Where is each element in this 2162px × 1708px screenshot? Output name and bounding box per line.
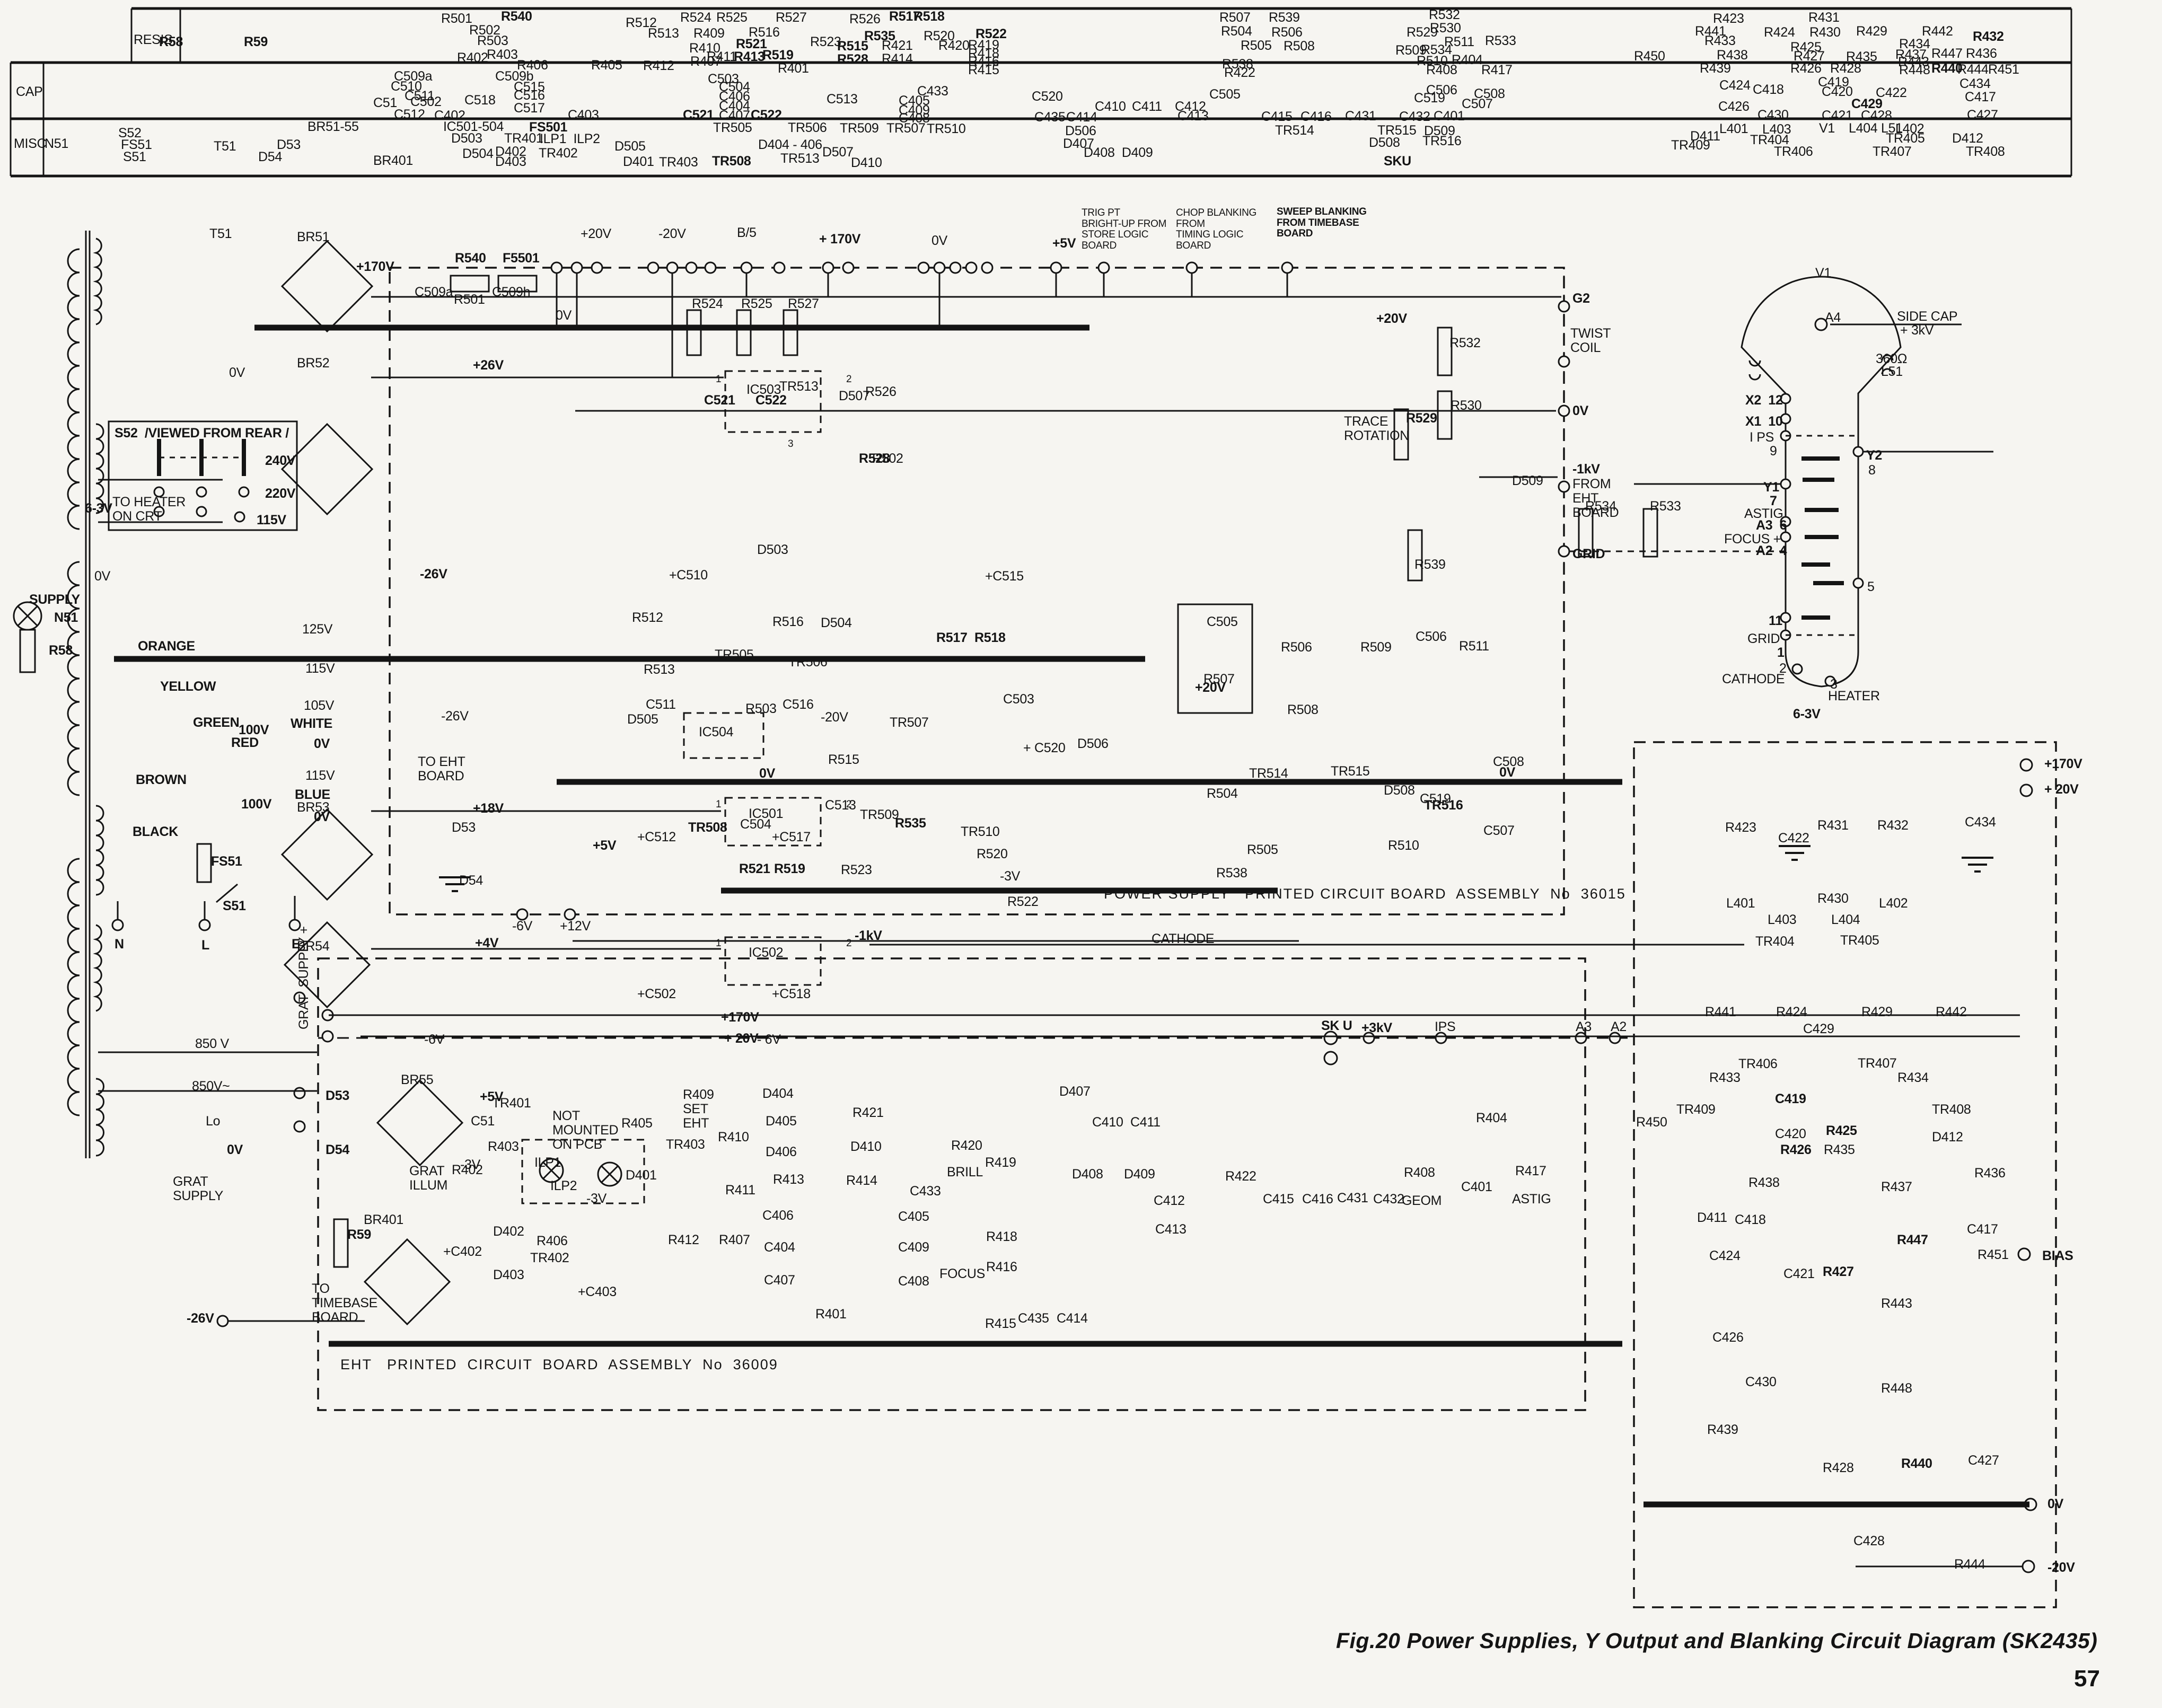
- schematic-label: -20V: [2047, 1561, 2075, 1575]
- schematic-label: R421: [882, 39, 913, 53]
- schematic-label: R58: [159, 35, 183, 49]
- schematic-label: R432: [1877, 818, 1909, 833]
- schematic-label: C429: [1803, 1022, 1834, 1036]
- schematic-label: BR51: [297, 230, 329, 244]
- schematic-label: R522: [1007, 895, 1039, 909]
- schematic-label: R525: [741, 297, 772, 311]
- schematic-label: C521: [704, 393, 735, 408]
- schematic-label: TO HEATER ON CRT: [112, 495, 186, 524]
- schematic-label: ILP1: [534, 1156, 561, 1170]
- schematic-label: FS51: [211, 855, 242, 869]
- schematic-label: -1kV: [1572, 462, 1600, 477]
- schematic-label: Lo: [206, 1114, 220, 1129]
- schematic-label: C427: [1968, 1454, 1999, 1468]
- schematic-label: G2: [1572, 292, 1590, 306]
- schematic-label: D505: [614, 139, 646, 154]
- schematic-label: R513: [644, 663, 675, 677]
- schematic-label: D509: [1512, 474, 1543, 488]
- schematic-label: D503: [757, 543, 788, 557]
- schematic-label: R403: [488, 1140, 519, 1154]
- schematic-label: R424: [1764, 25, 1795, 40]
- schematic-label: CATHODE: [1152, 932, 1214, 946]
- schematic-label: R512: [632, 611, 663, 625]
- schematic-label: V1: [1819, 121, 1835, 136]
- schematic-label: R433: [1709, 1071, 1741, 1085]
- schematic-label: TR509: [840, 121, 879, 136]
- schematic-label: 0V: [227, 1143, 243, 1157]
- schematic-label: C431: [1337, 1191, 1368, 1205]
- schematic-label: +170V: [2044, 757, 2082, 771]
- schematic-label: R434: [1897, 1071, 1929, 1085]
- schematic-label: TR514: [1275, 124, 1314, 138]
- schematic-label: TR408: [1966, 145, 2005, 159]
- schematic-label: D54: [258, 150, 282, 164]
- schematic-label: C432: [1399, 110, 1430, 124]
- schematic-label: R524: [680, 11, 711, 25]
- schematic-label: C406: [762, 1209, 794, 1223]
- schematic-label: R509: [1360, 640, 1392, 655]
- schematic-label: BLACK: [133, 825, 178, 839]
- schematic-label: 850 V: [195, 1037, 229, 1051]
- schematic-label: A4: [1825, 311, 1841, 325]
- schematic-label: R431: [1808, 11, 1840, 25]
- schematic-label: TR513: [779, 380, 819, 394]
- schematic-label: R510: [1388, 839, 1419, 853]
- schematic-label: C417: [1965, 90, 1996, 104]
- schematic-label: R438: [1717, 48, 1748, 63]
- schematic-label: T51: [214, 139, 236, 154]
- schematic-label: R430: [1809, 25, 1841, 40]
- schematic-label: R412: [668, 1233, 699, 1247]
- schematic-label: 0V: [94, 569, 110, 584]
- schematic-label: A3: [1576, 1020, 1592, 1034]
- schematic-label: N51: [54, 611, 78, 625]
- schematic-label: TRIG PT BRIGHT-UP FROM STORE LOGIC BOARD: [1082, 208, 1166, 251]
- schematic-label: C520: [1032, 90, 1063, 104]
- schematic-label: C415: [1263, 1192, 1294, 1207]
- schematic-label: A2 4: [1756, 544, 1787, 558]
- schematic-label: R415: [968, 63, 999, 77]
- schematic-label: C411: [1130, 1115, 1161, 1130]
- schematic-label: POWER SUPPLY PRINTED CIRCUIT BOARD ASSEM…: [1104, 886, 1626, 902]
- schematic-label: R405: [591, 58, 622, 73]
- schematic-label: R412: [643, 59, 674, 73]
- schematic-label: R431: [1817, 818, 1849, 833]
- schematic-label: R539: [1269, 11, 1300, 25]
- schematic-label: 240V: [265, 454, 295, 468]
- schematic-label: TWIST COIL: [1570, 327, 1611, 355]
- schematic-label: FS501: [529, 120, 567, 135]
- schematic-label: D508: [1369, 136, 1400, 150]
- schematic-label: GRAT ILLUM: [409, 1164, 447, 1193]
- schematic-label: TR507: [886, 121, 926, 136]
- schematic-label: D401: [626, 1168, 657, 1183]
- schematic-label: 0V: [1572, 404, 1588, 418]
- schematic-label: HEATER: [1828, 689, 1880, 703]
- schematic-label: EHT PRINTED CIRCUIT BOARD ASSEMBLY No 36…: [340, 1357, 778, 1372]
- schematic-label: +C515: [985, 569, 1024, 584]
- schematic-label: 115V: [257, 513, 286, 527]
- schematic-label: R420: [938, 39, 970, 53]
- schematic-label: D412: [1932, 1130, 1963, 1144]
- schematic-label: R442: [1936, 1005, 1967, 1019]
- schematic-label: -3V: [1000, 869, 1020, 884]
- schematic-label: S51: [223, 899, 246, 913]
- schematic-label: +12V: [560, 919, 591, 934]
- schematic-label: R533: [1485, 34, 1516, 48]
- schematic-label: GRID: [1572, 547, 1605, 561]
- schematic-label: R59: [347, 1228, 371, 1242]
- schematic-label: R401: [778, 61, 809, 76]
- schematic-label: L403: [1768, 913, 1796, 927]
- schematic-label: S51: [123, 150, 146, 164]
- schematic-label: R450: [1636, 1115, 1667, 1130]
- schematic-label: D507: [839, 389, 870, 403]
- schematic-label: R403: [487, 48, 518, 62]
- schematic-label: D404 - 406: [758, 138, 822, 152]
- schematic-label: R413: [773, 1173, 804, 1187]
- schematic-label: R439: [1707, 1423, 1738, 1437]
- schematic-label: L404: [1831, 913, 1860, 927]
- schematic-label: 1: [1777, 646, 1785, 660]
- schematic-label: R501: [441, 12, 472, 26]
- schematic-label: R404: [1452, 53, 1483, 67]
- schematic-label: C435: [1034, 110, 1066, 125]
- schematic-label: R411: [707, 50, 737, 64]
- schematic-label: R409: [693, 27, 725, 41]
- schematic-label: ORANGE: [138, 639, 195, 654]
- schematic-label: R443: [1881, 1297, 1912, 1311]
- schematic-label: C430: [1757, 108, 1789, 122]
- schematic-label: +C510: [669, 568, 708, 583]
- schematic-label: +20V: [1195, 681, 1226, 695]
- transformer-t51: [68, 231, 104, 1158]
- schematic-label: -26V: [441, 709, 469, 724]
- schematic-label: C519: [1414, 91, 1445, 105]
- schematic-label: +3kV: [1361, 1021, 1392, 1035]
- schematic-label: SK U: [1321, 1019, 1352, 1033]
- schematic-label: D406: [766, 1145, 797, 1159]
- schematic-label: R435: [1824, 1143, 1855, 1157]
- schematic-label: R540: [455, 251, 486, 266]
- schematic-label: TR404: [1755, 935, 1795, 949]
- schematic-label: TR405: [1886, 131, 1925, 146]
- schematic-label: R426: [1780, 1143, 1812, 1157]
- schematic-label: R526: [849, 12, 881, 27]
- schematic-label: 1: [716, 799, 721, 811]
- schematic-label: D54: [326, 1143, 349, 1157]
- schematic-label: C426: [1718, 100, 1750, 114]
- schematic-label: B/5: [737, 226, 757, 240]
- schematic-label: R507: [1219, 11, 1251, 25]
- schematic-label: 0V: [314, 737, 330, 751]
- schematic-label: R424: [1776, 1005, 1807, 1019]
- schematic-label: R532: [1449, 336, 1481, 350]
- schematic-label: MISC: [14, 137, 46, 151]
- schematic-label: R534: [1585, 499, 1616, 514]
- schematic-label: TR403: [666, 1138, 705, 1152]
- schematic-label: R410: [718, 1130, 749, 1144]
- schematic-label: R433: [1704, 34, 1736, 48]
- schematic-label: TR407: [1858, 1057, 1897, 1071]
- schematic-label: TR402: [530, 1251, 569, 1265]
- schematic-label: N51: [45, 137, 68, 151]
- schematic-label: C422: [1876, 86, 1907, 100]
- schematic-label: R523: [841, 863, 872, 877]
- schematic-label: +26V: [473, 358, 504, 373]
- schematic-label: R416: [986, 1260, 1017, 1274]
- schematic-label: R422: [1225, 1169, 1256, 1184]
- schematic-label: SKU: [1384, 154, 1411, 169]
- schematic-label: C432: [1373, 1192, 1404, 1207]
- schematic-label: -1kV: [855, 929, 882, 943]
- schematic-label: -20V: [658, 227, 686, 241]
- schematic-label: C505: [1207, 615, 1238, 629]
- schematic-label: BRILL: [947, 1165, 983, 1179]
- schematic-label: R533: [1650, 499, 1681, 514]
- schematic-label: BR51-55: [307, 120, 359, 134]
- schematic-label: GRAT SUPPLY +: [297, 926, 311, 1029]
- schematic-label: ASTIG: [1512, 1192, 1551, 1207]
- schematic-label: 11: [1769, 614, 1782, 628]
- schematic-label: R508: [1287, 703, 1319, 717]
- schematic-label: C420: [1822, 85, 1853, 99]
- schematic-label: CAP: [16, 85, 43, 99]
- schematic-label: D401: [623, 155, 654, 169]
- schematic-label: TR403: [659, 155, 698, 170]
- schematic-label: C403: [568, 108, 599, 122]
- schematic-label: R504: [1207, 787, 1238, 801]
- schematic-label: C511: [646, 698, 676, 712]
- schematic-label: C415: [1261, 110, 1293, 124]
- schematic-label: +C502: [637, 987, 676, 1001]
- schematic-label: R523: [810, 35, 841, 49]
- schematic-label: C418: [1735, 1213, 1766, 1227]
- schematic-label: C420: [1775, 1127, 1806, 1141]
- schematic-label: R518: [913, 10, 945, 24]
- schematic-label: R438: [1748, 1176, 1780, 1190]
- schematic-label: SWEEP BLANKING FROM TIMEBASE BOARD: [1277, 207, 1367, 240]
- schematic-label: TR514: [1249, 767, 1288, 781]
- schematic-label: R503: [745, 702, 777, 716]
- schematic-label: R450: [1634, 49, 1665, 64]
- schematic-label: C422: [1778, 831, 1809, 846]
- schematic-label: 0V: [759, 767, 775, 781]
- schematic-label: D504: [821, 616, 852, 630]
- schematic-label: C512: [394, 108, 425, 122]
- schematic-label: Y1: [1763, 480, 1779, 495]
- schematic-label: -6V: [424, 1033, 444, 1047]
- schematic-label: C410: [1095, 100, 1126, 114]
- schematic-label: R414: [882, 52, 913, 66]
- schematic-label: R423: [1725, 821, 1756, 835]
- schematic-label: +C512: [637, 830, 676, 844]
- schematic-label: 220V: [265, 487, 295, 501]
- schematic-label: R436: [1974, 1166, 2006, 1181]
- schematic-label: R451: [1978, 1248, 2009, 1262]
- schematic-label: A2: [1611, 1020, 1627, 1034]
- schematic-label: L: [201, 938, 209, 953]
- schematic-label: L402: [1879, 896, 1908, 911]
- schematic-label: TR506: [788, 121, 827, 135]
- schematic-label: 0V: [1499, 765, 1515, 780]
- schematic-label: CHOP BLANKING FROM TIMING LOGIC BOARD: [1176, 208, 1256, 251]
- schematic-label: D504: [462, 147, 494, 161]
- schematic-label: R506: [1281, 640, 1312, 655]
- component-boxes: [334, 276, 1657, 1267]
- schematic-label: TR516: [1424, 798, 1463, 813]
- schematic-label: BIAS: [2042, 1249, 2073, 1263]
- schematic-label: +C402: [443, 1245, 482, 1259]
- schematic-label: R505: [1247, 843, 1278, 857]
- schematic-label: A3 6: [1756, 518, 1787, 533]
- schematic-label: D403: [495, 155, 526, 169]
- schematic-label: R506: [1271, 25, 1303, 40]
- schematic-label: X1 10: [1745, 415, 1782, 429]
- schematic-label: R515: [828, 753, 859, 767]
- schematic-label: C405: [898, 1210, 929, 1224]
- schematic-label: TO TIMEBASE BOARD: [312, 1282, 377, 1325]
- schematic-label: + 3kV: [1900, 323, 1934, 338]
- schematic-label: TR405: [1840, 934, 1879, 948]
- schematic-label: L51: [1881, 365, 1903, 379]
- schematic-label: R422: [1224, 66, 1255, 80]
- schematic-label: C505: [1209, 87, 1241, 102]
- schematic-label: +20V: [581, 227, 611, 241]
- schematic-label: C433: [910, 1184, 941, 1199]
- schematic-label: R440: [1901, 1457, 1932, 1471]
- schematic-label: R447: [1897, 1233, 1928, 1247]
- schematic-label: R535: [895, 816, 926, 831]
- schematic-label: +18V: [473, 802, 504, 816]
- schematic-label: R418: [986, 1230, 1017, 1244]
- schematic-label: R408: [1404, 1166, 1435, 1180]
- page-number: 57: [2074, 1666, 2100, 1692]
- schematic-label: C424: [1709, 1249, 1741, 1263]
- schematic-label: + 20V: [2044, 782, 2079, 797]
- schematic-label: RED: [231, 736, 259, 750]
- schematic-label: 2: [846, 374, 851, 385]
- schematic-label: BR401: [364, 1213, 403, 1227]
- schematic-label: R448: [1881, 1381, 1912, 1396]
- schematic-label: IPS: [1435, 1020, 1455, 1034]
- schematic-label: D53: [452, 821, 476, 835]
- schematic-label: D404: [762, 1087, 794, 1101]
- schematic-label: TR407: [1873, 145, 1912, 159]
- schematic-label: - 6V: [757, 1033, 781, 1047]
- schematic-label: R521: [736, 37, 767, 51]
- schematic-label: R525: [716, 11, 748, 25]
- schematic-label: D410: [851, 156, 882, 170]
- schematic-label: S52 /VIEWED FROM REAR /: [115, 426, 289, 441]
- schematic-label: R538: [1216, 866, 1247, 881]
- schematic-label: R448: [1899, 63, 1930, 77]
- schematic-label: R451: [1988, 63, 2019, 77]
- schematic-label: R421: [853, 1106, 884, 1120]
- schematic-artwork: [0, 0, 2162, 1708]
- schematic-label: YELLOW: [160, 680, 216, 694]
- schematic-label: D408: [1072, 1167, 1103, 1182]
- schematic-label: C522: [755, 393, 787, 408]
- schematic-label: R402: [457, 51, 488, 65]
- schematic-label: C401: [1461, 1180, 1492, 1194]
- schematic-label: C426: [1712, 1331, 1744, 1345]
- zero-volt-buses: [114, 328, 2029, 1504]
- schematic-label: R524: [692, 297, 723, 311]
- schematic-label: R501: [454, 293, 485, 307]
- schematic-label: + C520: [1023, 741, 1066, 755]
- schematic-label: C408: [898, 1274, 929, 1289]
- schematic-label: D403: [493, 1268, 524, 1282]
- schematic-label: +170V: [721, 1010, 759, 1025]
- schematic-label: C518: [464, 93, 496, 108]
- schematic-label: C516: [783, 698, 814, 712]
- schematic-label: C407: [764, 1273, 795, 1288]
- schematic-label: R402: [452, 1163, 483, 1177]
- schematic-label: 2: [846, 938, 851, 949]
- schematic-label: C427: [1967, 108, 1998, 122]
- schematic-label: R511: [1459, 639, 1489, 654]
- schematic-label: R503: [477, 34, 508, 48]
- schematic-label: BR401: [373, 154, 413, 168]
- schematic-label: C521: [683, 108, 714, 122]
- schematic-label: R420: [951, 1139, 982, 1153]
- schematic-label: R417: [1515, 1164, 1546, 1178]
- schematic-label: C421: [1783, 1267, 1815, 1281]
- schematic-label: 105V: [304, 699, 334, 713]
- schematic-label: 9: [1770, 444, 1777, 459]
- schematic-label: R414: [846, 1174, 877, 1188]
- schematic-label: R508: [1284, 39, 1315, 54]
- schematic-label: -26V: [420, 567, 447, 582]
- schematic-label: C411: [1132, 100, 1162, 114]
- schematic-label: R432: [1973, 30, 2004, 44]
- schematic-label: R415: [985, 1317, 1016, 1331]
- schematic-label: R527: [788, 297, 819, 311]
- schematic-label: R411: [725, 1183, 755, 1198]
- schematic-label: TR406: [1738, 1057, 1778, 1071]
- schematic-label: D410: [850, 1140, 882, 1154]
- schematic-label: R437: [1881, 1180, 1912, 1194]
- schematic-label: 0V: [2047, 1497, 2063, 1511]
- schematic-label: BR52: [297, 356, 329, 371]
- schematic-label: X2 12: [1745, 393, 1782, 408]
- schematic-label: + 20V: [724, 1032, 759, 1046]
- schematic-label: C409: [898, 1240, 929, 1255]
- schematic-label: TR505: [715, 648, 754, 662]
- schematic-label: BROWN: [136, 773, 187, 787]
- schematic-label: BR55: [401, 1073, 433, 1087]
- schematic-label: R529: [1406, 411, 1437, 426]
- schematic-label: R515: [837, 39, 868, 54]
- schematic-label: 5: [1867, 580, 1875, 594]
- schematic-label: TR515: [1331, 764, 1370, 779]
- schematic-page: RESISR58R59R501R502R503R540R402R403R406R…: [0, 0, 2162, 1708]
- schematic-label: C522: [751, 108, 782, 122]
- schematic-label: R429: [1856, 24, 1887, 39]
- schematic-label: R428: [1823, 1461, 1854, 1475]
- schematic-label: R444: [1957, 63, 1989, 77]
- schematic-label: R530: [1430, 21, 1461, 36]
- schematic-label: C513: [827, 92, 858, 107]
- schematic-label: C414: [1066, 110, 1097, 125]
- schematic-label: D402: [493, 1225, 524, 1239]
- schematic-label: C509a: [415, 285, 453, 300]
- schematic-label: 115V: [305, 662, 335, 676]
- figure-caption: Fig.20 Power Supplies, Y Output and Blan…: [1336, 1628, 2097, 1653]
- schematic-label: C503: [1003, 692, 1034, 707]
- schematic-label: C418: [1753, 83, 1784, 97]
